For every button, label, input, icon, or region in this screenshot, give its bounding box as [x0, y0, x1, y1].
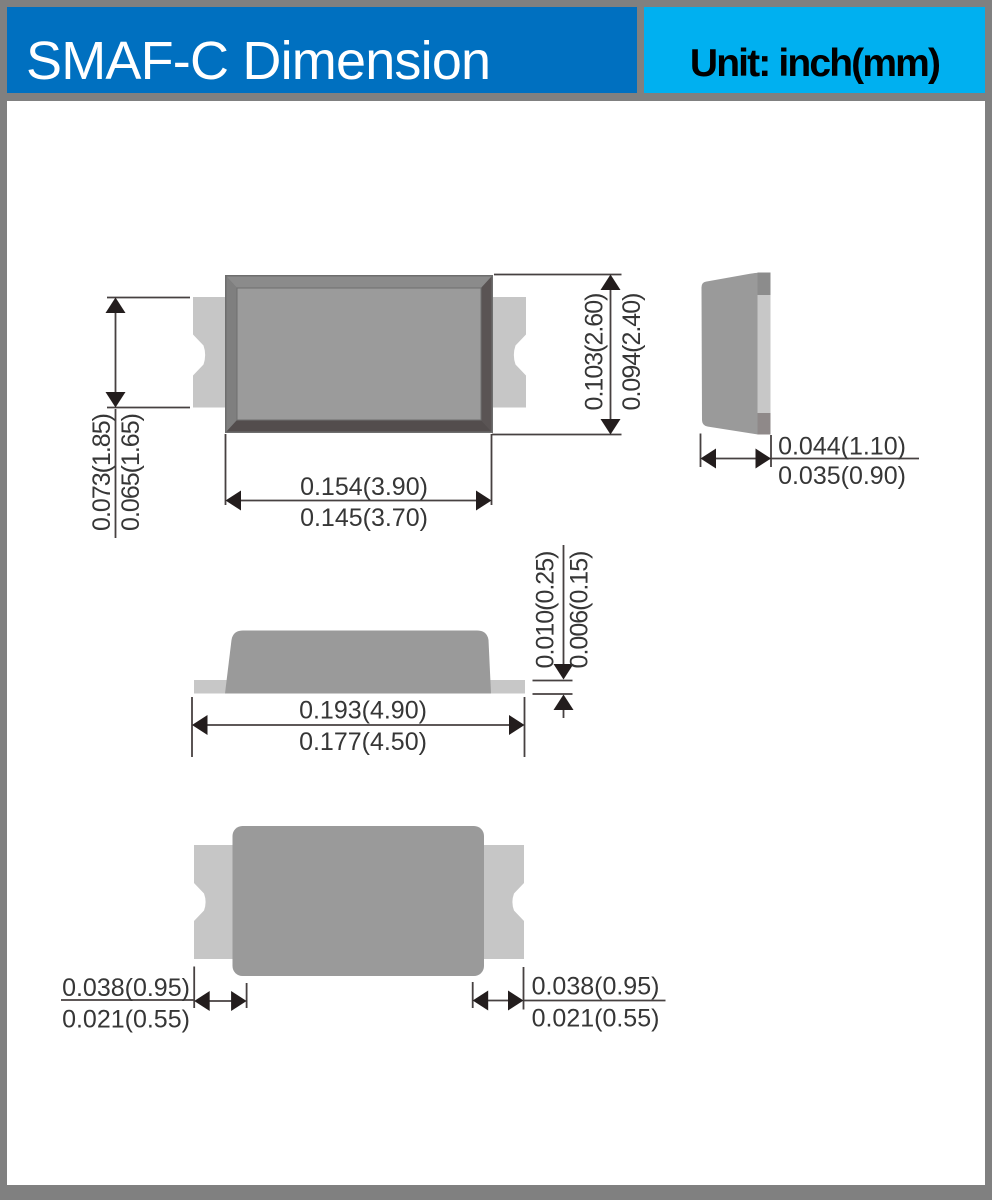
svg-text:0.193(4.90): 0.193(4.90) — [299, 697, 427, 725]
svg-text:0.010(0.25): 0.010(0.25) — [532, 552, 560, 669]
svg-text:0.044(1.10): 0.044(1.10) — [778, 433, 906, 461]
svg-text:0.021(0.55): 0.021(0.55) — [532, 1005, 660, 1033]
svg-text:0.103(2.60): 0.103(2.60) — [581, 294, 609, 411]
svg-text:0.073(1.85): 0.073(1.85) — [88, 414, 116, 531]
svg-text:0.065(1.65): 0.065(1.65) — [117, 414, 145, 531]
svg-text:0.021(0.55): 0.021(0.55) — [62, 1006, 190, 1034]
svg-text:0.154(3.90): 0.154(3.90) — [300, 473, 428, 501]
svg-text:0.145(3.70): 0.145(3.70) — [300, 504, 428, 532]
svg-text:0.038(0.95): 0.038(0.95) — [532, 973, 660, 1001]
svg-text:0.038(0.95): 0.038(0.95) — [62, 974, 190, 1002]
svg-text:0.006(0.15): 0.006(0.15) — [566, 552, 594, 669]
svg-text:0.094(2.40): 0.094(2.40) — [618, 294, 646, 411]
svg-text:0.177(4.50): 0.177(4.50) — [299, 728, 427, 756]
svg-text:0.035(0.90): 0.035(0.90) — [778, 462, 906, 490]
